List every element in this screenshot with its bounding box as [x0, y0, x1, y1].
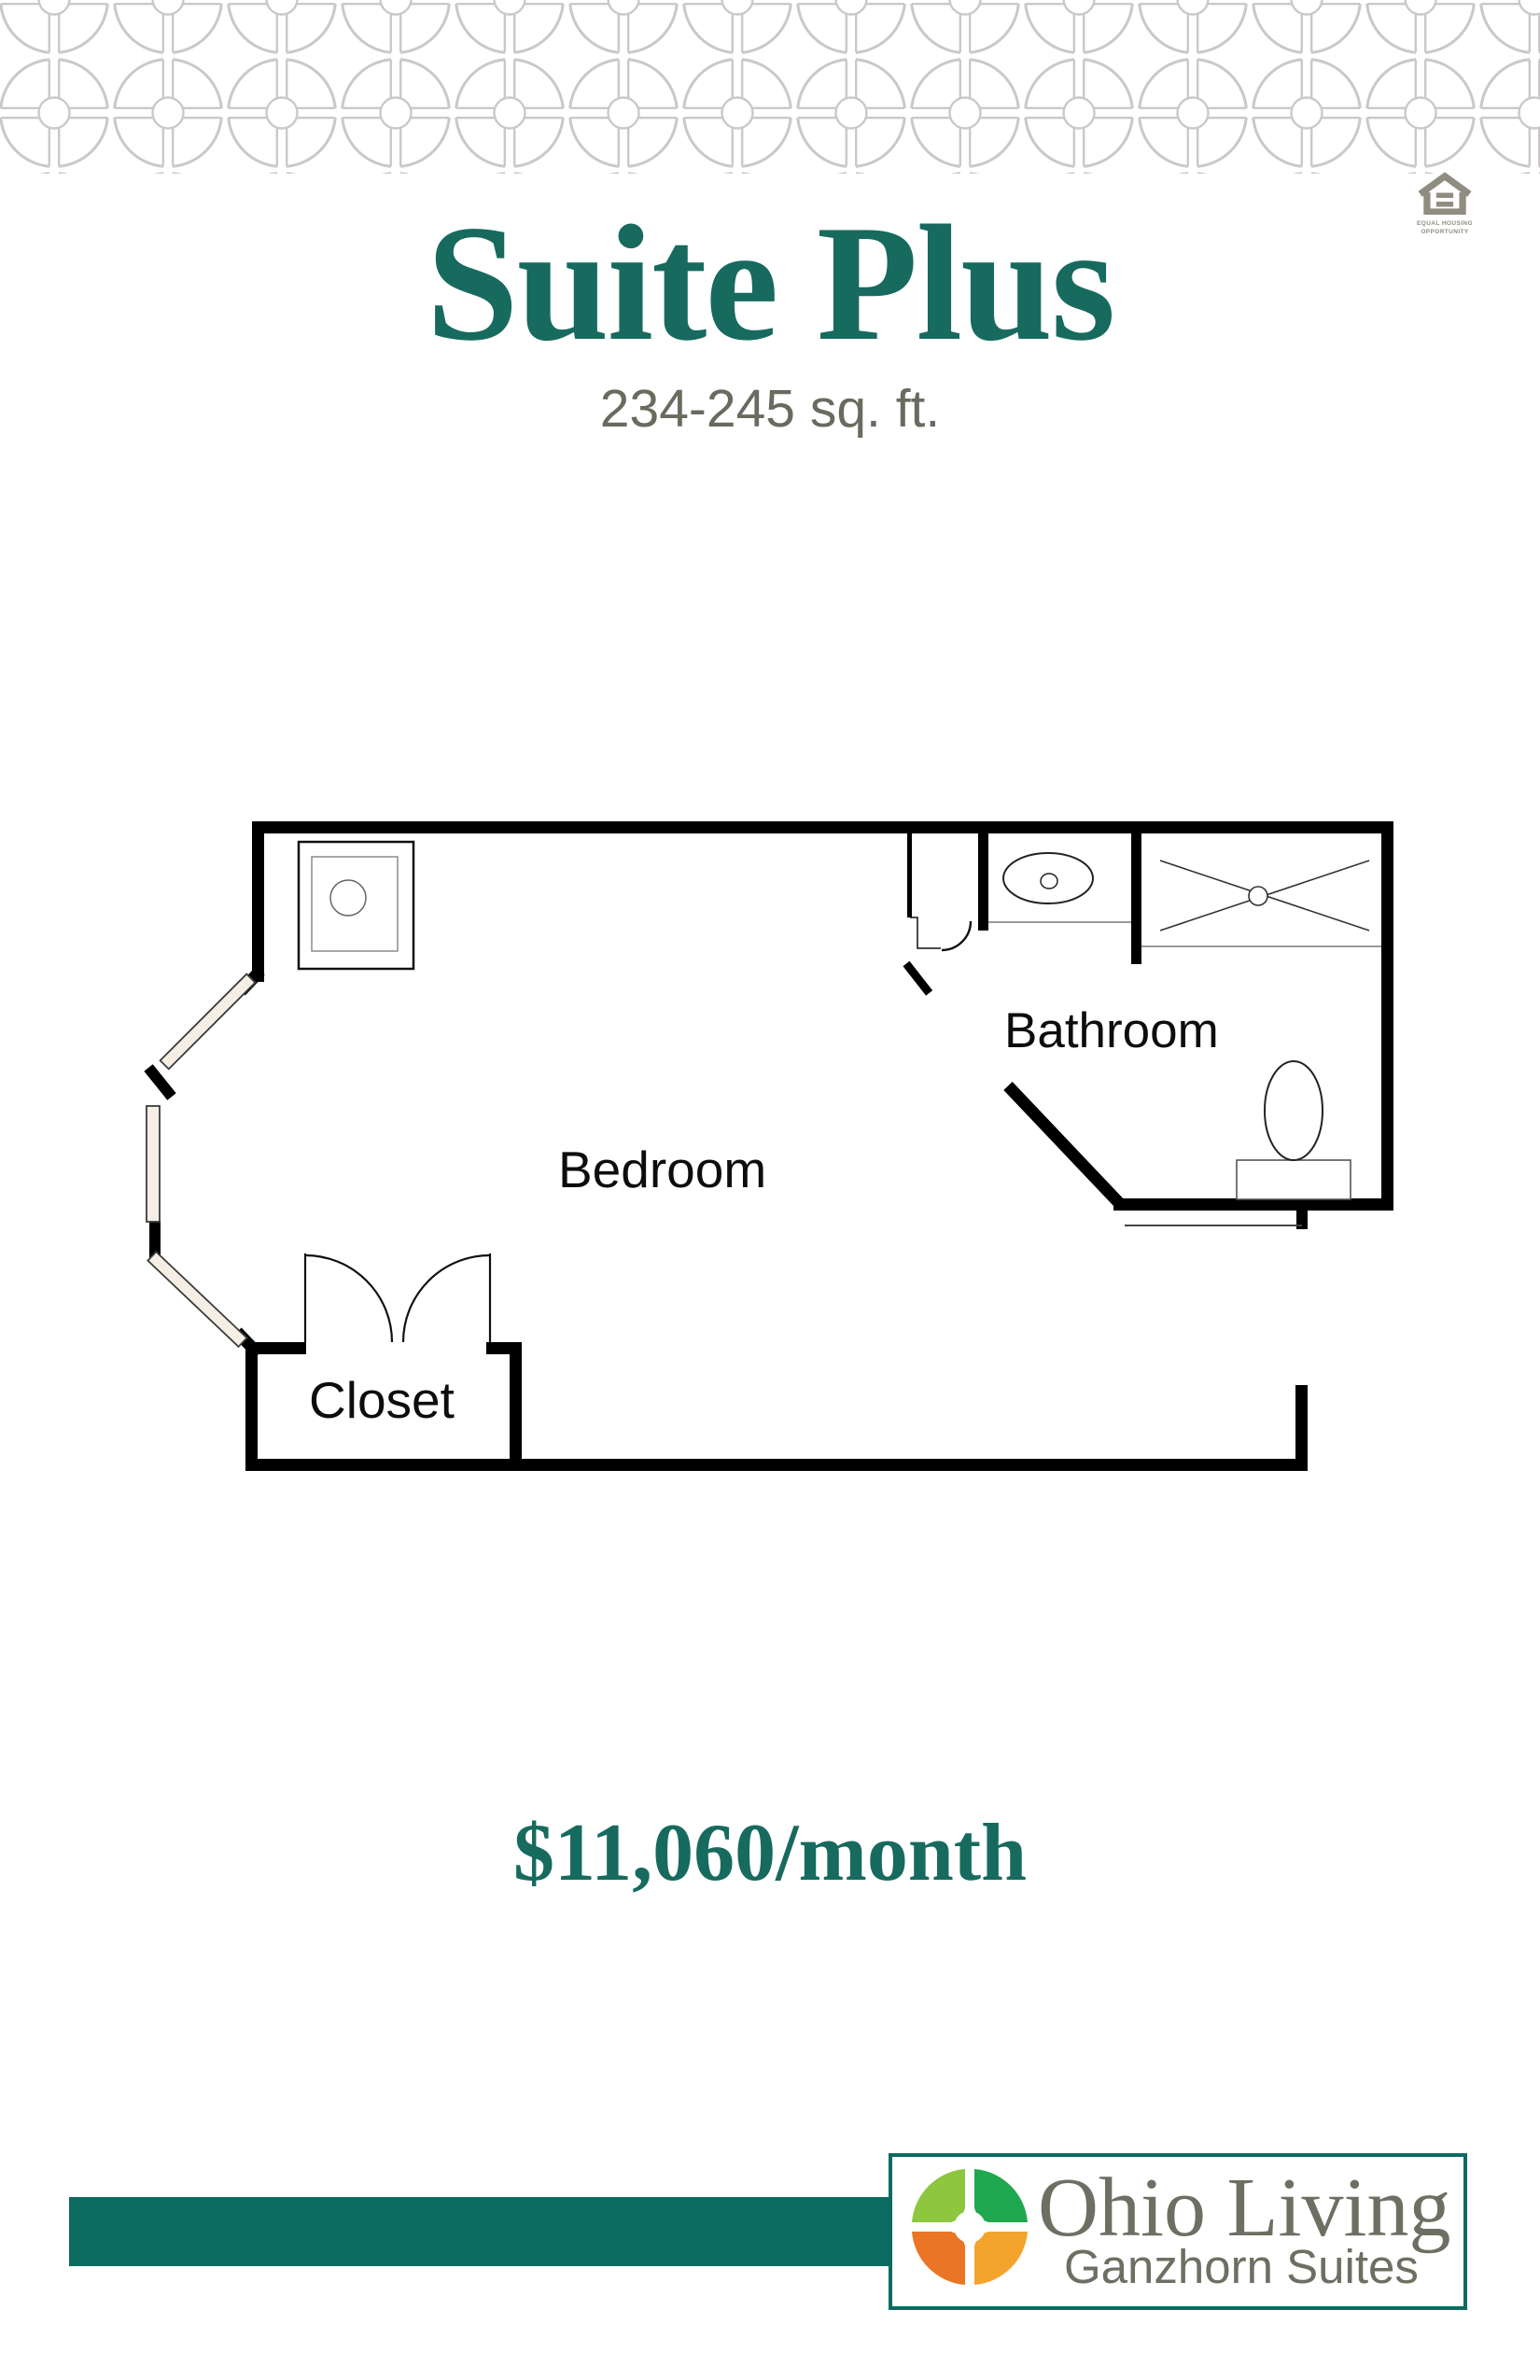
ohio-living-compass-icon: [904, 2162, 1035, 2292]
monthly-price: $11,060/month: [0, 1813, 1540, 1895]
brand-name: Ohio Living: [1038, 2166, 1451, 2250]
ohio-living-logo-box: Ohio Living Ganzhorn Suites: [889, 2153, 1467, 2310]
bathroom-door: [910, 917, 971, 950]
bathroom-sink: [988, 853, 1131, 922]
community-name: Ganzhorn Suites: [1064, 2243, 1419, 2290]
window-lower-diagonal: [147, 1252, 246, 1347]
corner-cabinet: [299, 842, 413, 969]
shower: [1141, 861, 1381, 946]
closet-label: Closet: [309, 1375, 455, 1426]
window-upper-diagonal: [161, 974, 256, 1070]
floor-plan: [0, 0, 1540, 2380]
closet-double-doors: [305, 1253, 490, 1342]
flyer-page: { "header": { "title": "Suite Plus", "su…: [0, 0, 1540, 2380]
toilet: [1237, 1061, 1351, 1199]
footer-accent-bar: [69, 2197, 890, 2266]
window-vertical: [147, 1106, 160, 1222]
bay-windows: [147, 974, 255, 1347]
bathroom-label: Bathroom: [1004, 1005, 1219, 1057]
bedroom-label: Bedroom: [558, 1144, 766, 1196]
